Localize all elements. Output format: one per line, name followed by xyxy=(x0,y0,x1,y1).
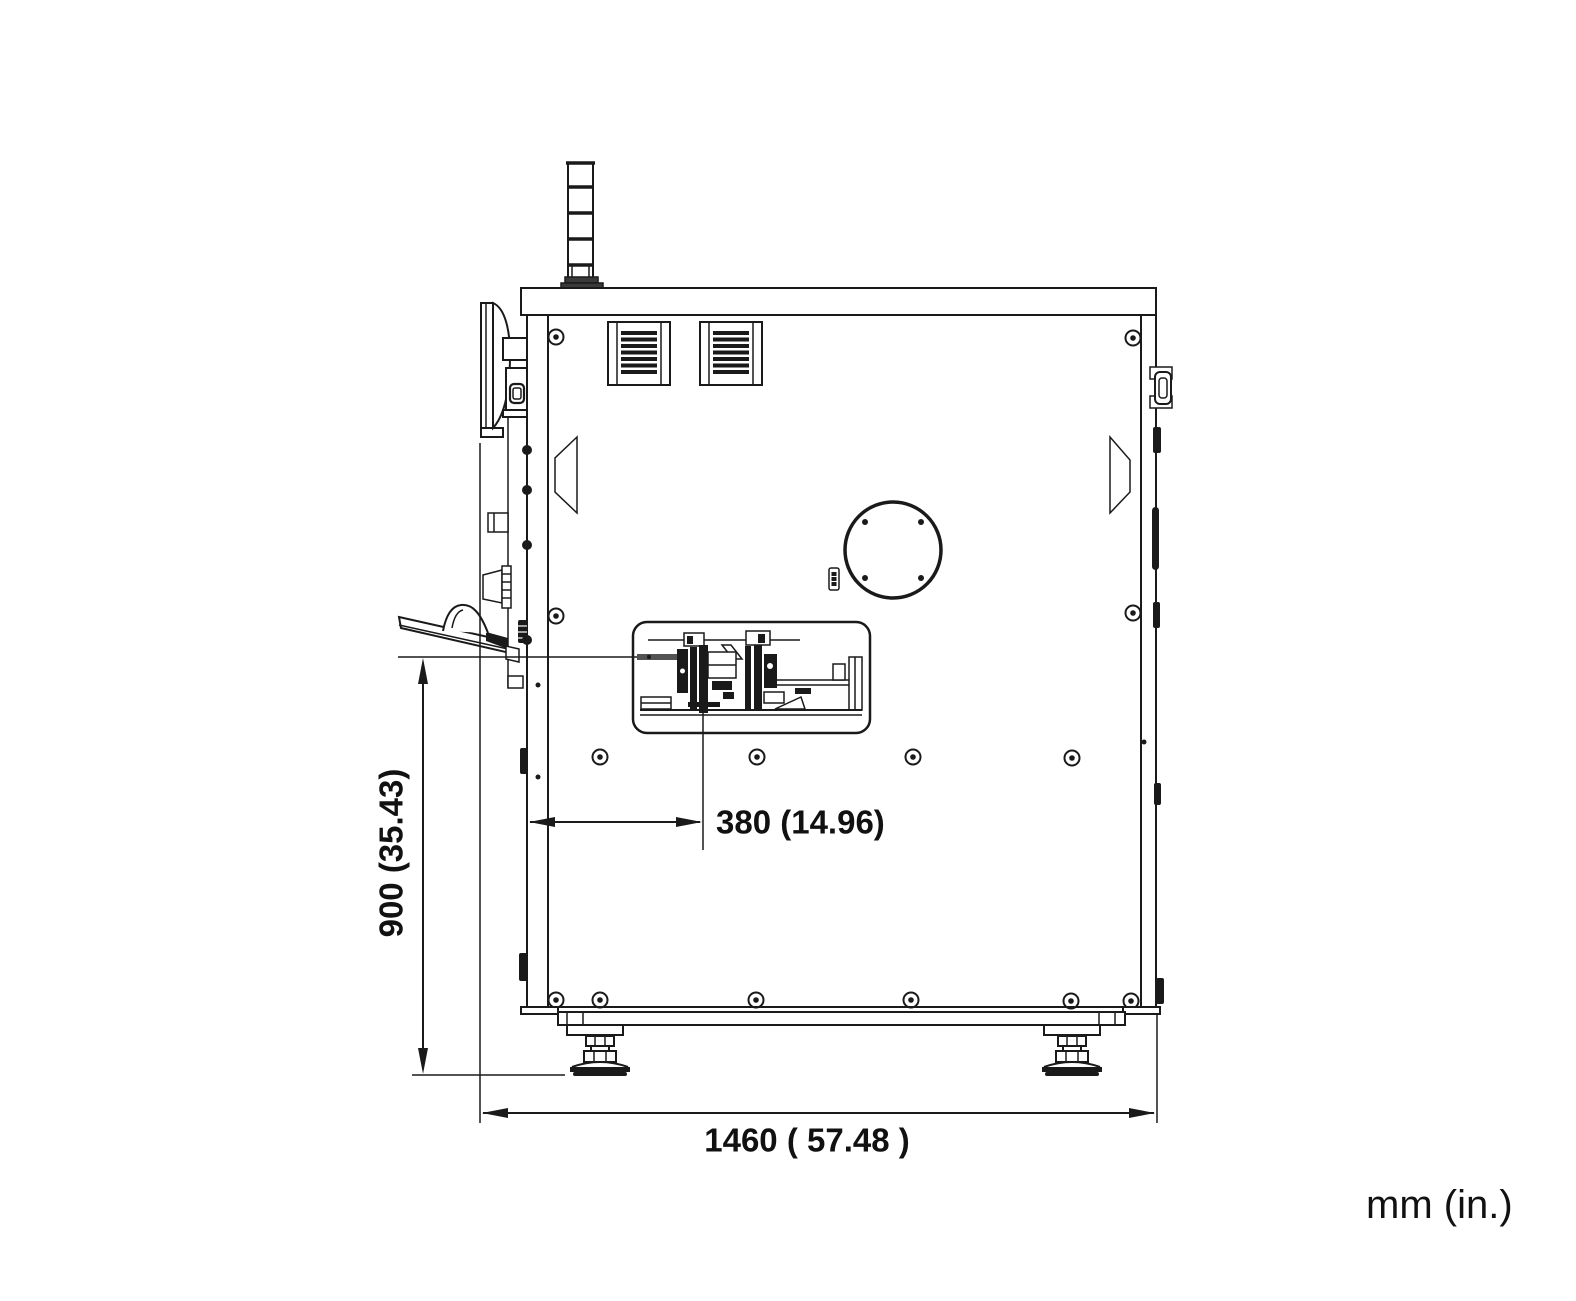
signal-tower xyxy=(561,163,603,289)
leveling-foot-right xyxy=(1042,1035,1102,1076)
vent-right xyxy=(700,322,762,385)
monitor-mount xyxy=(503,338,527,417)
vent-left xyxy=(608,322,670,385)
mouse xyxy=(443,605,488,633)
dimension-label-offset: 380 (14.96) xyxy=(716,804,885,841)
door-hinge-left-upper xyxy=(520,748,528,774)
small-connector xyxy=(829,568,839,590)
base-frame xyxy=(521,1007,1160,1035)
tray-bracket xyxy=(506,646,519,662)
machine-body xyxy=(483,315,1172,1009)
dimension-label-height: 900 (35.43) xyxy=(373,769,410,938)
technical-drawing-page: 900 (35.43) 380 (14.96) 1460 ( 57.48 ) m… xyxy=(0,0,1576,1301)
machine-side-elevation-drawing: 900 (35.43) 380 (14.96) 1460 ( 57.48 ) m… xyxy=(0,0,1576,1301)
top-cap-panel xyxy=(521,288,1156,315)
units-note: mm (in.) xyxy=(1366,1183,1513,1227)
leveling-foot-left xyxy=(570,1035,630,1076)
monitor xyxy=(481,303,527,437)
door-hinge-left-lower xyxy=(519,953,528,981)
keyboard-tray xyxy=(399,605,519,662)
dimension-label-width: 1460 ( 57.48 ) xyxy=(704,1122,909,1159)
